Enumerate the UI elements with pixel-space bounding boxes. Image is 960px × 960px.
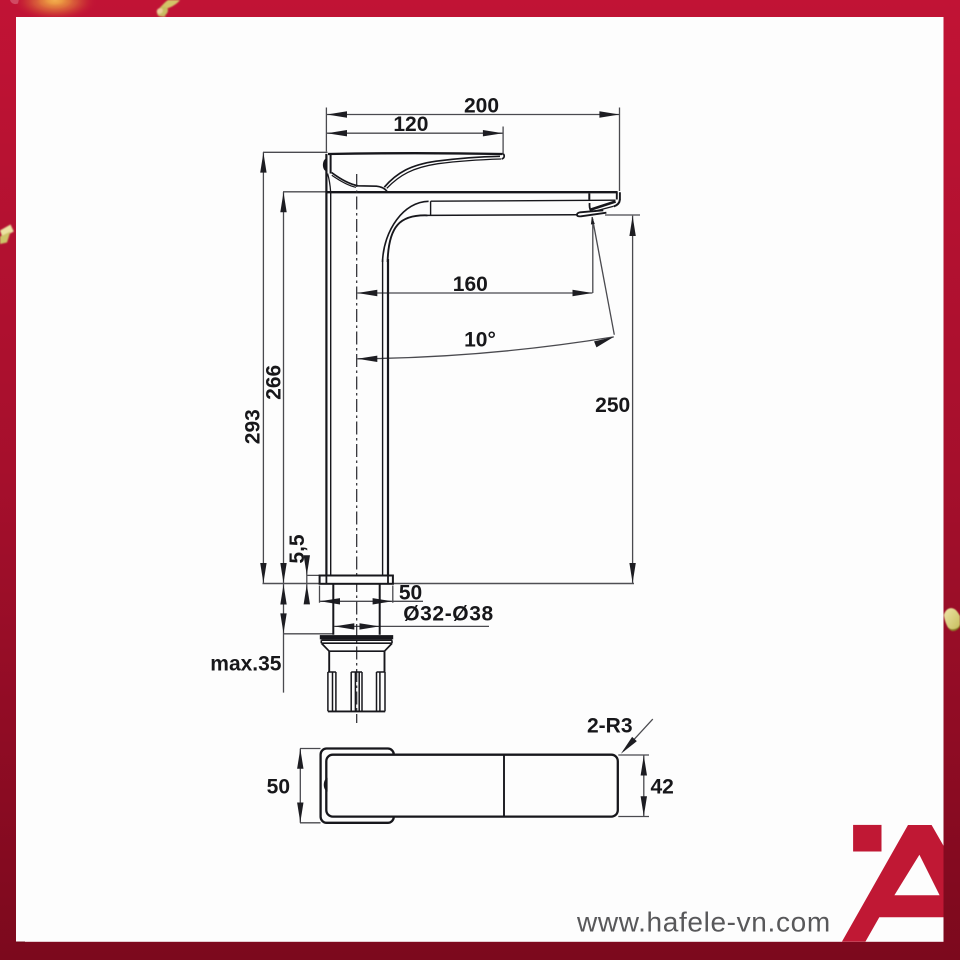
svg-text:Ø32-Ø38: Ø32-Ø38 xyxy=(403,603,494,626)
svg-text:50: 50 xyxy=(267,776,290,799)
svg-text:293: 293 xyxy=(241,409,264,444)
svg-text:www.hafele-vn.com: www.hafele-vn.com xyxy=(576,907,831,938)
svg-text:160: 160 xyxy=(453,273,488,296)
svg-text:50: 50 xyxy=(399,582,422,605)
svg-text:5,5: 5,5 xyxy=(286,534,309,564)
svg-text:250: 250 xyxy=(595,394,630,417)
svg-text:120: 120 xyxy=(393,113,428,136)
svg-text:max.35: max.35 xyxy=(210,652,282,675)
svg-text:42: 42 xyxy=(651,776,674,799)
svg-text:266: 266 xyxy=(263,365,286,400)
svg-text:10°: 10° xyxy=(464,329,496,352)
svg-text:2-R3: 2-R3 xyxy=(587,714,633,737)
svg-text:200: 200 xyxy=(464,94,499,117)
